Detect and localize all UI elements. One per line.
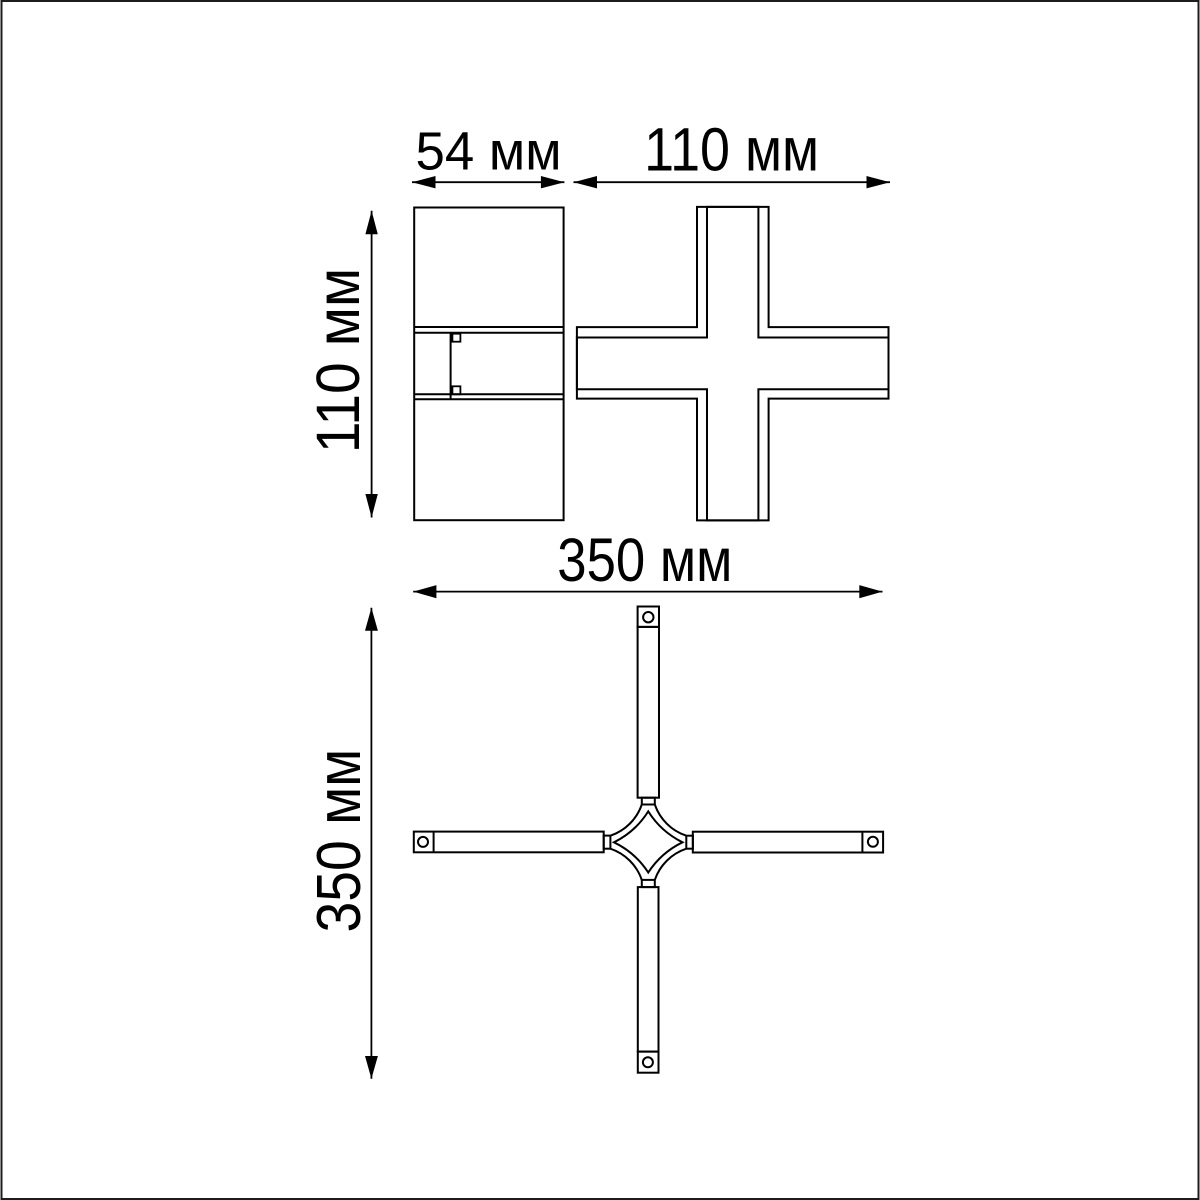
svg-text:54 мм: 54 мм [416,121,562,181]
svg-text:110 мм: 110 мм [304,268,373,454]
svg-text:110 мм: 110 мм [644,116,819,184]
svg-text:350 мм: 350 мм [557,526,732,594]
svg-text:350 мм: 350 мм [305,749,374,933]
